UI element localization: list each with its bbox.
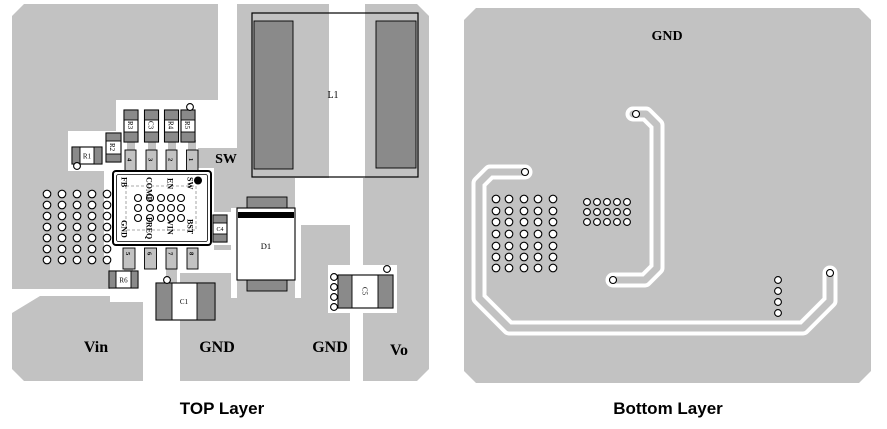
- via: [168, 195, 175, 202]
- label-gnd-input: GND: [199, 339, 235, 356]
- pcb-layout-figure: L1 R3 C3 R4 R5: [0, 0, 887, 429]
- bottom-via-grid-center: [584, 199, 631, 226]
- label-sw: SW: [215, 152, 237, 167]
- via: [614, 209, 621, 216]
- via: [492, 253, 500, 261]
- via: [505, 253, 513, 261]
- label-gnd-bottom: GND: [651, 29, 682, 44]
- ic-pin-fb: FB: [120, 177, 129, 188]
- label-vin: Vin: [84, 339, 108, 356]
- l1-pad-left: [254, 21, 293, 169]
- component-r1: R1: [72, 147, 102, 164]
- d1-cathode-band: [238, 212, 294, 218]
- via: [43, 190, 51, 198]
- via: [520, 253, 528, 261]
- r6-label: R6: [119, 277, 128, 285]
- via: [158, 215, 165, 222]
- via: [73, 256, 81, 264]
- ic-u1: FB COMP EN SW GND FREQ VIN BST: [113, 171, 211, 245]
- via: [331, 304, 338, 311]
- via: [384, 266, 391, 273]
- via: [43, 256, 51, 264]
- pcb-layout-svg: L1 R3 C3 R4 R5: [0, 0, 887, 429]
- via: [58, 256, 66, 264]
- via: [505, 230, 513, 238]
- via: [549, 207, 557, 215]
- ic-pin-gnd: GND: [120, 220, 129, 238]
- via: [604, 209, 611, 216]
- c1-label: C1: [180, 298, 189, 306]
- c3-label: C3: [147, 121, 155, 130]
- via: [775, 277, 782, 284]
- c4-label: C4: [216, 227, 223, 233]
- via: [505, 195, 513, 203]
- via: [103, 212, 111, 220]
- r2-label: R2: [108, 143, 116, 152]
- via: [103, 223, 111, 231]
- via: [624, 219, 631, 226]
- via: [73, 223, 81, 231]
- component-r4: R4: [165, 110, 179, 142]
- via: [58, 234, 66, 242]
- via: [584, 209, 591, 216]
- via: [43, 245, 51, 253]
- via: [520, 230, 528, 238]
- via: [594, 209, 601, 216]
- via: [492, 195, 500, 203]
- via: [549, 195, 557, 203]
- via: [522, 169, 529, 176]
- via: [584, 219, 591, 226]
- via: [103, 245, 111, 253]
- component-r2: R2: [106, 133, 121, 162]
- via: [633, 111, 640, 118]
- via: [147, 205, 154, 212]
- via: [168, 205, 175, 212]
- via: [492, 207, 500, 215]
- component-c5: C5: [338, 275, 393, 308]
- via: [43, 201, 51, 209]
- via: [534, 230, 542, 238]
- via: [827, 270, 834, 277]
- via: [624, 209, 631, 216]
- c5-label: C5: [361, 287, 369, 296]
- via: [492, 230, 500, 238]
- via: [103, 190, 111, 198]
- via: [88, 256, 96, 264]
- ic-pin-comp: COMP: [145, 177, 154, 202]
- caption-bottom-layer: Bottom Layer: [613, 399, 723, 418]
- via: [610, 277, 617, 284]
- ic-pad-2: 2: [167, 158, 174, 161]
- via: [73, 245, 81, 253]
- via: [492, 242, 500, 250]
- via: [534, 218, 542, 226]
- via: [88, 234, 96, 242]
- via: [58, 212, 66, 220]
- via: [74, 163, 81, 170]
- via: [187, 104, 194, 111]
- via: [88, 245, 96, 253]
- via: [73, 234, 81, 242]
- via: [534, 242, 542, 250]
- via: [58, 190, 66, 198]
- via: [604, 199, 611, 206]
- via: [614, 199, 621, 206]
- via: [88, 212, 96, 220]
- via: [43, 223, 51, 231]
- via: [534, 253, 542, 261]
- ic-pin-sw: SW: [186, 177, 195, 189]
- ic-pin-bst: BST: [186, 219, 195, 235]
- via: [614, 219, 621, 226]
- caption-top-layer: TOP Layer: [180, 399, 265, 418]
- ic-pad-1: 1: [187, 158, 194, 161]
- via: [505, 207, 513, 215]
- component-r3: R3: [124, 110, 138, 142]
- via: [492, 264, 500, 272]
- via: [505, 218, 513, 226]
- via: [520, 218, 528, 226]
- via: [534, 207, 542, 215]
- d1-label: D1: [261, 241, 271, 251]
- via: [103, 234, 111, 242]
- via: [103, 256, 111, 264]
- l1-label: L1: [327, 90, 338, 101]
- via: [520, 195, 528, 203]
- via: [58, 223, 66, 231]
- d1-pad-top: [247, 197, 287, 209]
- r5-label: R5: [183, 121, 191, 130]
- via: [135, 215, 142, 222]
- via: [520, 242, 528, 250]
- via: [549, 218, 557, 226]
- via: [43, 234, 51, 242]
- d1-pad-bottom: [247, 279, 287, 291]
- via: [158, 205, 165, 212]
- via: [73, 201, 81, 209]
- r1-label: R1: [83, 153, 92, 161]
- via: [604, 219, 611, 226]
- via: [58, 245, 66, 253]
- via: [520, 207, 528, 215]
- via: [73, 212, 81, 220]
- component-d1: D1: [237, 197, 295, 291]
- via: [520, 264, 528, 272]
- bottom-layer-board: GND: [464, 8, 871, 383]
- via: [594, 219, 601, 226]
- via: [624, 199, 631, 206]
- via: [775, 288, 782, 295]
- label-vo: Vo: [390, 342, 408, 359]
- label-gnd-output: GND: [312, 339, 348, 356]
- l1-pad-right: [376, 21, 416, 168]
- component-c4: C4: [213, 215, 227, 242]
- top-layer-board: L1 R3 C3 R4 R5: [12, 4, 429, 381]
- component-r6: R6: [109, 271, 138, 288]
- via: [88, 190, 96, 198]
- via: [584, 199, 591, 206]
- via: [549, 264, 557, 272]
- via: [103, 201, 111, 209]
- via: [331, 284, 338, 291]
- via: [534, 264, 542, 272]
- ic-pin-freq: FREQ: [145, 217, 154, 239]
- ic-pin-en: EN: [166, 178, 175, 189]
- via: [505, 242, 513, 250]
- via: [73, 190, 81, 198]
- via: [775, 310, 782, 317]
- via: [549, 253, 557, 261]
- via: [164, 277, 171, 284]
- r4-label: R4: [167, 121, 175, 130]
- via: [549, 242, 557, 250]
- via: [135, 195, 142, 202]
- component-r5: R5: [181, 110, 195, 142]
- via: [492, 218, 500, 226]
- via: [178, 205, 185, 212]
- via: [88, 223, 96, 231]
- r3-label: R3: [126, 121, 134, 130]
- via: [775, 299, 782, 306]
- via: [549, 230, 557, 238]
- via: [135, 205, 142, 212]
- via: [88, 201, 96, 209]
- ic-pin-vin: VIN: [166, 220, 175, 235]
- via: [58, 201, 66, 209]
- component-c1: C1: [156, 283, 215, 320]
- via: [178, 195, 185, 202]
- via: [505, 264, 513, 272]
- via: [43, 212, 51, 220]
- via: [534, 195, 542, 203]
- ic-thermal-vias: [135, 195, 185, 222]
- via: [331, 274, 338, 281]
- via: [594, 199, 601, 206]
- via: [331, 294, 338, 301]
- via: [178, 215, 185, 222]
- via: [158, 195, 165, 202]
- component-c3: C3: [145, 110, 159, 142]
